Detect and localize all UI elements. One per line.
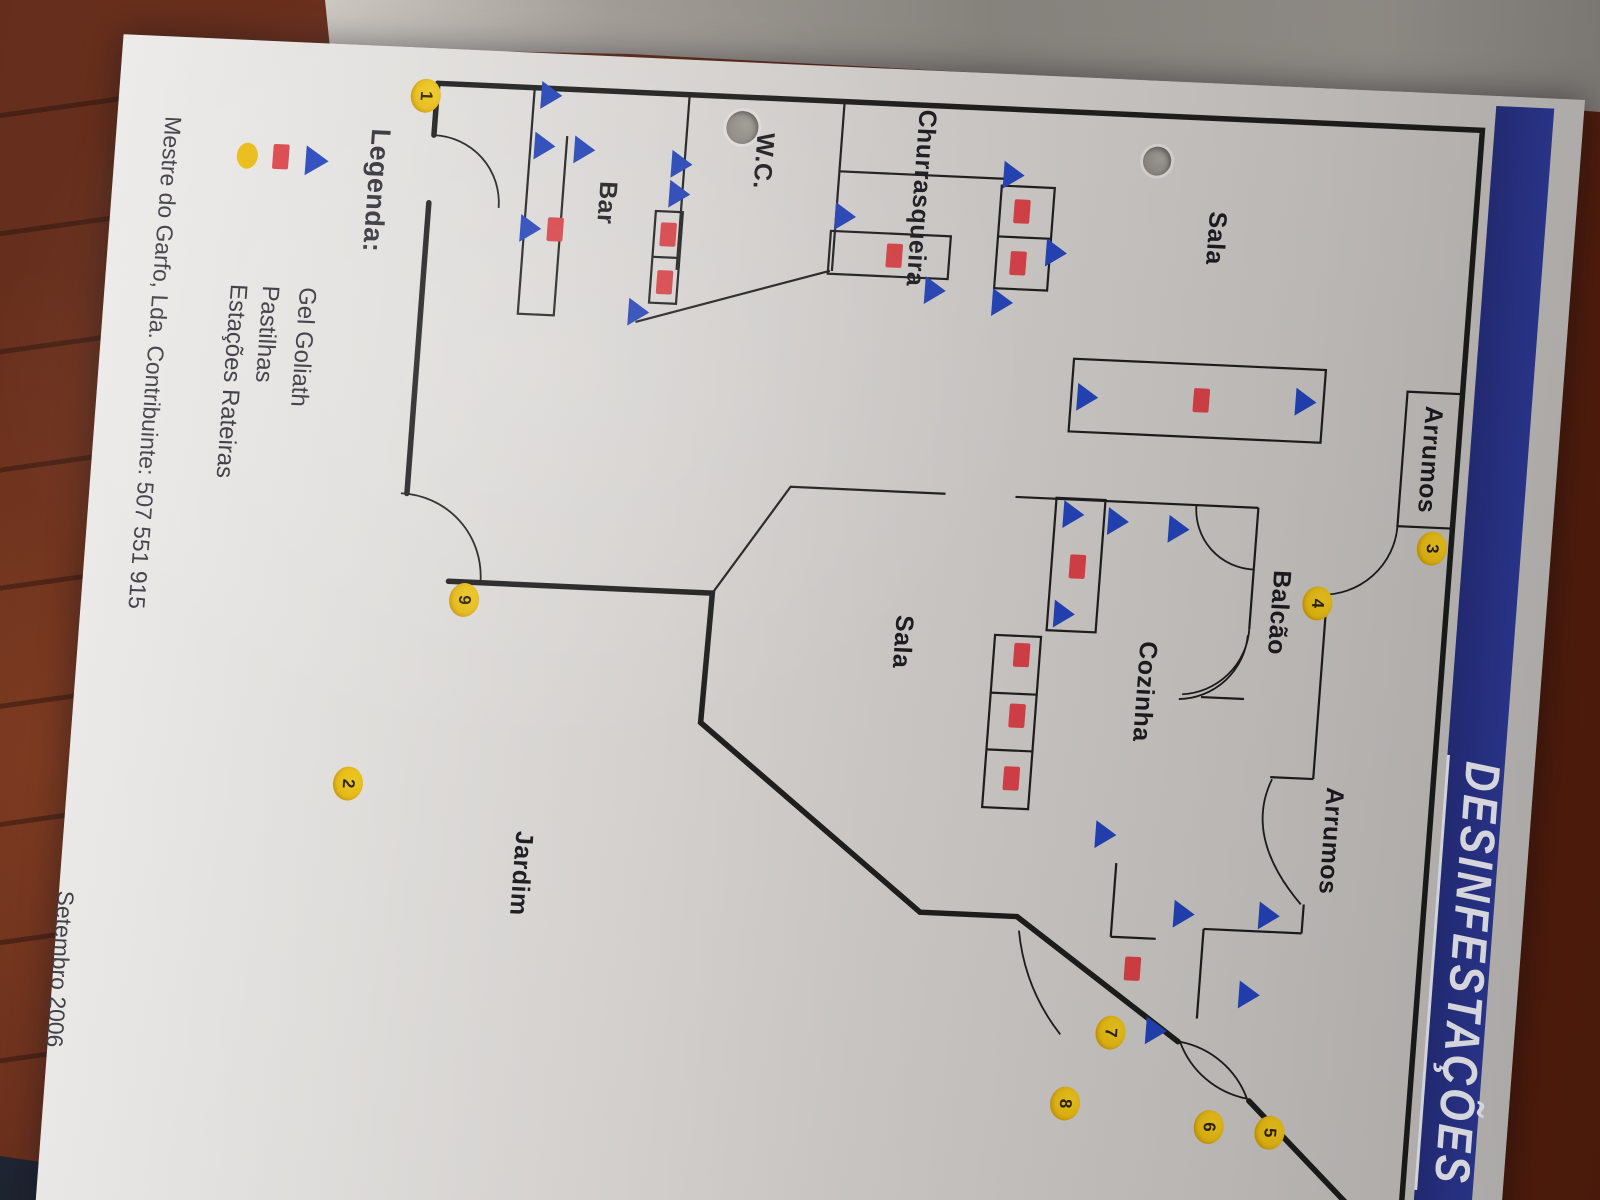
gel-goliath-marker	[519, 214, 542, 243]
gel-goliath-marker	[1003, 161, 1026, 190]
pastilha-marker	[1013, 643, 1031, 668]
gel-goliath-marker	[991, 288, 1014, 317]
gel-goliath-marker	[1062, 500, 1085, 529]
room-label-sala: Sala	[1199, 211, 1232, 266]
gel-goliath-marker	[540, 81, 563, 110]
document-stage: DESINFESTAÇÕES	[0, 0, 1586, 1200]
pastilha-marker	[659, 222, 677, 247]
gel-goliath-marker	[1173, 900, 1196, 929]
gel-goliath-marker	[1107, 507, 1130, 536]
pastilha-marker	[1192, 388, 1210, 413]
pastilha-marker	[1009, 251, 1027, 276]
gel-goliath-marker	[1076, 383, 1099, 412]
date-footer: Setembro 2006	[40, 890, 79, 1048]
gel-goliath-marker	[627, 298, 650, 327]
red-rectangle-icon	[272, 144, 290, 170]
gel-goliath-marker	[1094, 820, 1117, 849]
photographed-floor-plan: DESINFESTAÇÕES	[0, 0, 1600, 1200]
company-footer: Mestre do Garfo, Lda. Contribuinte: 507 …	[122, 116, 186, 610]
paper-sheet: DESINFESTAÇÕES	[19, 34, 1585, 1200]
gel-goliath-marker	[573, 135, 596, 164]
gel-goliath-marker	[1238, 981, 1261, 1010]
legend-label: Gel Goliath	[284, 287, 321, 408]
pastilha-marker	[656, 270, 674, 295]
gel-goliath-marker	[670, 150, 693, 179]
room-label-bar: Bar	[590, 181, 622, 225]
gel-goliath-marker	[668, 180, 691, 209]
pastilha-marker	[1069, 554, 1087, 579]
pastilha-marker	[885, 243, 903, 268]
yellow-circle-icon	[236, 142, 259, 169]
pastilha-marker	[546, 217, 564, 242]
room-label-sala: Sala	[886, 614, 919, 669]
gel-goliath-marker	[1168, 515, 1191, 544]
gel-goliath-marker	[533, 132, 556, 161]
pastilha-marker	[1013, 199, 1031, 224]
room-label-wc: W.C.	[746, 132, 779, 189]
gel-goliath-marker	[1258, 902, 1281, 931]
gel-goliath-marker	[1053, 600, 1076, 629]
pastilha-marker	[1124, 956, 1142, 981]
gel-goliath-marker	[1045, 239, 1068, 268]
pastilha-marker	[1002, 766, 1020, 791]
pastilha-marker	[1008, 703, 1026, 728]
gel-goliath-marker	[1145, 1016, 1168, 1045]
gel-goliath-marker	[1294, 388, 1317, 417]
legend-label: Pastilhas	[249, 285, 284, 383]
blue-triangle-icon	[305, 145, 330, 176]
gel-goliath-marker	[924, 276, 947, 305]
gel-goliath-marker	[834, 202, 857, 231]
